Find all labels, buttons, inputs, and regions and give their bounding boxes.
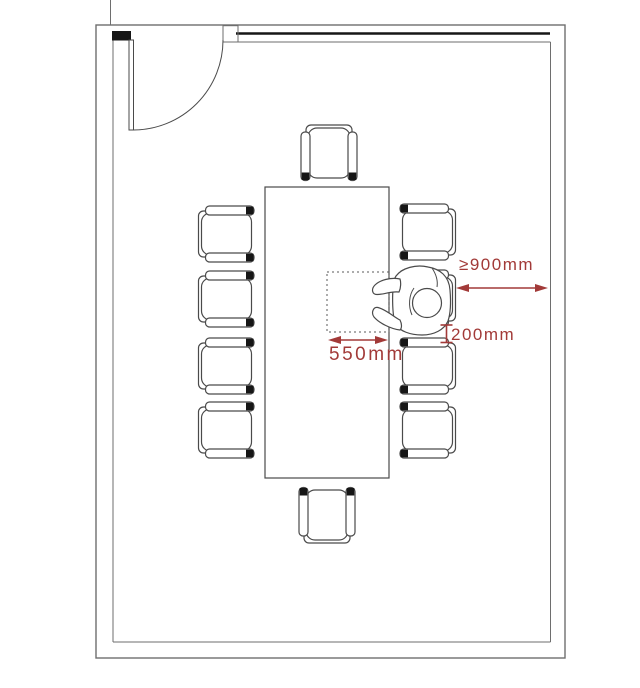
chair-left-2 xyxy=(199,271,255,327)
floor-plan: ≥900mm 200mm 550mm xyxy=(0,0,640,688)
door xyxy=(112,26,238,130)
dim-arrow-900 xyxy=(456,284,548,292)
chair-right-3 xyxy=(400,338,456,394)
door-swing-arc xyxy=(134,40,224,130)
chair-left-4 xyxy=(199,402,255,458)
dim-label-spacing-200: 200mm xyxy=(451,325,515,345)
chair-right-1 xyxy=(400,204,456,260)
chair-bottom xyxy=(299,488,355,544)
door-jamb-right xyxy=(223,26,238,42)
chair-top xyxy=(301,125,357,181)
chair-left-3 xyxy=(199,338,255,394)
chair-right-4 xyxy=(400,402,456,458)
door-leaf xyxy=(129,40,134,130)
floor-plan-drawing xyxy=(0,0,640,688)
door-jamb-left xyxy=(112,31,131,41)
chair-left-1 xyxy=(199,206,255,262)
dim-label-setting-550: 550mm xyxy=(329,344,405,366)
dim-label-clearance-900: ≥900mm xyxy=(459,255,534,275)
person-head xyxy=(413,289,442,318)
